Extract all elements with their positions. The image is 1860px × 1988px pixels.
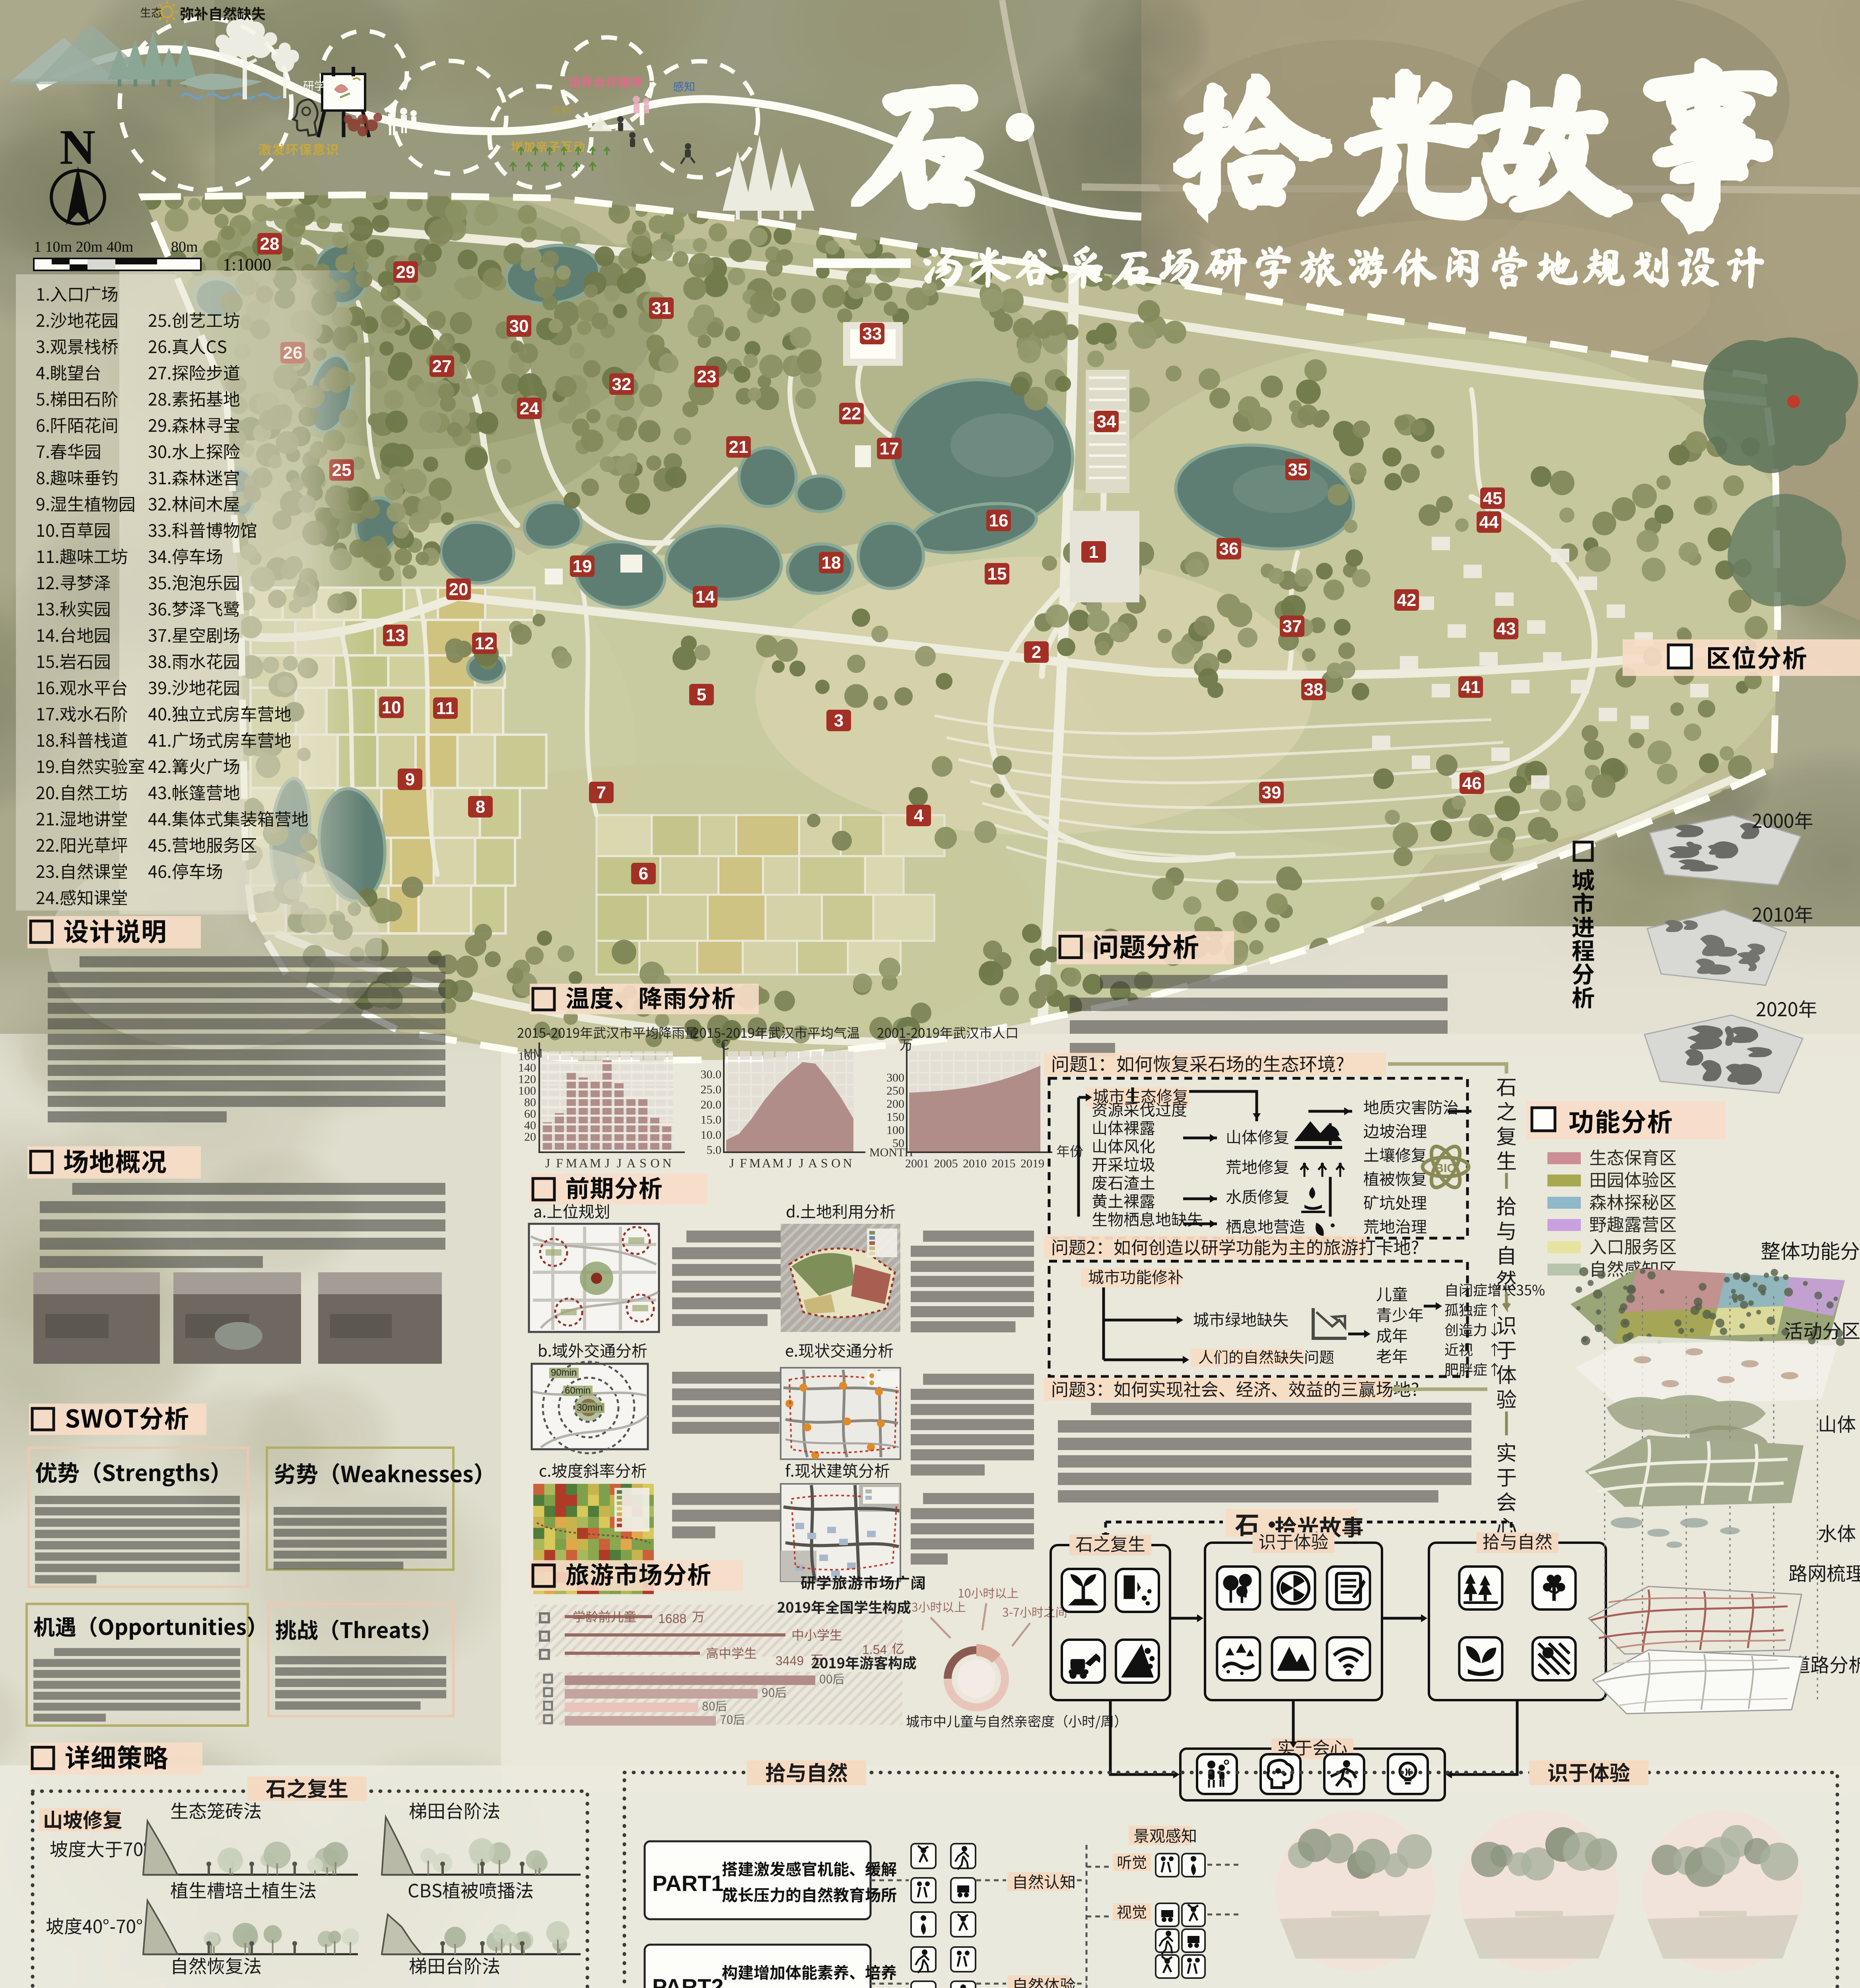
svg-text:28: 28 xyxy=(260,234,280,254)
svg-text:42: 42 xyxy=(1397,590,1417,610)
svg-text:1 10m 20m 40m: 1 10m 20m 40m xyxy=(34,239,133,255)
svg-text:J: J xyxy=(729,1156,734,1170)
svg-text:N: N xyxy=(60,120,95,175)
svg-text:45: 45 xyxy=(1483,489,1502,508)
svg-text:3449: 3449 xyxy=(775,1654,804,1668)
svg-text:19: 19 xyxy=(573,557,592,576)
svg-text:80m: 80m xyxy=(171,239,198,255)
svg-text:14: 14 xyxy=(696,587,715,607)
svg-text:J: J xyxy=(787,1156,792,1170)
svg-text:7: 7 xyxy=(597,783,606,802)
svg-text:F: F xyxy=(556,1156,563,1170)
svg-text:2001: 2001 xyxy=(905,1157,929,1170)
svg-text:M: M xyxy=(772,1156,783,1170)
svg-text:13: 13 xyxy=(386,626,405,645)
svg-text:9: 9 xyxy=(405,770,415,789)
svg-text:24: 24 xyxy=(520,399,539,418)
svg-text:M: M xyxy=(566,1156,577,1170)
svg-text:1:1000: 1:1000 xyxy=(223,255,271,274)
svg-text:150: 150 xyxy=(886,1110,904,1124)
svg-text:10: 10 xyxy=(382,698,401,717)
svg-text:O: O xyxy=(650,1156,659,1170)
svg-text:37: 37 xyxy=(1283,617,1302,636)
svg-text:N: N xyxy=(662,1156,671,1170)
svg-text:30: 30 xyxy=(509,316,529,336)
svg-text:2005: 2005 xyxy=(934,1157,958,1170)
svg-text:35: 35 xyxy=(1288,460,1308,480)
svg-text:M: M xyxy=(590,1156,601,1170)
svg-text:J: J xyxy=(545,1156,550,1170)
svg-text:A: A xyxy=(579,1156,588,1170)
svg-text:39: 39 xyxy=(1262,783,1281,802)
svg-text:38: 38 xyxy=(1304,680,1324,699)
svg-text:10.0: 10.0 xyxy=(701,1128,722,1142)
svg-text:100: 100 xyxy=(886,1124,904,1137)
svg-text:200: 200 xyxy=(886,1097,904,1110)
svg-text:J: J xyxy=(617,1156,622,1170)
svg-text:6: 6 xyxy=(639,864,648,883)
svg-text:44: 44 xyxy=(1479,513,1499,532)
svg-text:BIO: BIO xyxy=(1435,1162,1456,1175)
svg-text:60min: 60min xyxy=(565,1385,591,1396)
svg-text:33: 33 xyxy=(863,324,882,344)
svg-text:17: 17 xyxy=(880,439,899,458)
svg-text:1: 1 xyxy=(1089,542,1098,562)
svg-text:30min: 30min xyxy=(577,1402,603,1413)
svg-text:A: A xyxy=(808,1156,817,1170)
svg-text:32: 32 xyxy=(612,375,632,394)
svg-text:31: 31 xyxy=(652,299,671,318)
svg-text:O: O xyxy=(831,1156,840,1170)
svg-text:1.54: 1.54 xyxy=(862,1642,887,1657)
svg-text:30.0: 30.0 xyxy=(701,1068,722,1081)
svg-text:PART1.: PART1. xyxy=(652,1871,730,1896)
svg-text:A: A xyxy=(626,1156,636,1170)
svg-text:16: 16 xyxy=(989,511,1009,530)
svg-text:90min: 90min xyxy=(551,1367,577,1378)
svg-text:20: 20 xyxy=(524,1130,536,1143)
svg-text:20.0: 20.0 xyxy=(701,1098,722,1111)
svg-text:29: 29 xyxy=(396,262,416,282)
svg-text:23: 23 xyxy=(697,367,717,386)
svg-text:300: 300 xyxy=(886,1071,904,1084)
svg-text:J: J xyxy=(799,1156,803,1170)
svg-text:15.0: 15.0 xyxy=(701,1113,722,1126)
svg-text:18: 18 xyxy=(822,553,841,573)
svg-text:12: 12 xyxy=(475,634,494,653)
svg-text:S: S xyxy=(821,1156,828,1170)
svg-text:2: 2 xyxy=(1032,643,1041,662)
svg-text:2015: 2015 xyxy=(992,1157,1016,1170)
svg-text:J: J xyxy=(605,1156,610,1170)
svg-text:25.0: 25.0 xyxy=(701,1083,722,1096)
svg-text:1688: 1688 xyxy=(658,1611,686,1626)
svg-text:22: 22 xyxy=(842,404,861,423)
svg-text:PART2.: PART2. xyxy=(652,1974,730,1988)
svg-text:46: 46 xyxy=(1462,774,1482,793)
svg-text:8: 8 xyxy=(476,797,485,817)
svg-text:A: A xyxy=(762,1156,771,1170)
svg-text:34: 34 xyxy=(1097,412,1116,431)
svg-text:250: 250 xyxy=(886,1084,904,1097)
svg-text:15: 15 xyxy=(987,564,1007,584)
svg-text:11: 11 xyxy=(436,699,455,718)
svg-text:43: 43 xyxy=(1497,619,1516,639)
svg-text:20: 20 xyxy=(449,580,468,599)
svg-text:27: 27 xyxy=(432,357,452,376)
svg-text:S: S xyxy=(639,1156,647,1170)
svg-text:M: M xyxy=(749,1156,760,1170)
svg-text:N: N xyxy=(843,1156,852,1170)
svg-text:21: 21 xyxy=(729,437,748,457)
svg-text:5: 5 xyxy=(697,685,706,705)
svg-text:F: F xyxy=(740,1156,747,1170)
svg-text:2019: 2019 xyxy=(1020,1157,1044,1170)
svg-text:5.0: 5.0 xyxy=(707,1143,722,1157)
svg-text:36: 36 xyxy=(1219,539,1239,559)
svg-text:3: 3 xyxy=(834,711,844,730)
svg-text:50: 50 xyxy=(892,1137,904,1150)
svg-text:4: 4 xyxy=(914,806,924,825)
svg-text:2010: 2010 xyxy=(963,1157,987,1170)
svg-text:41: 41 xyxy=(1461,678,1481,697)
